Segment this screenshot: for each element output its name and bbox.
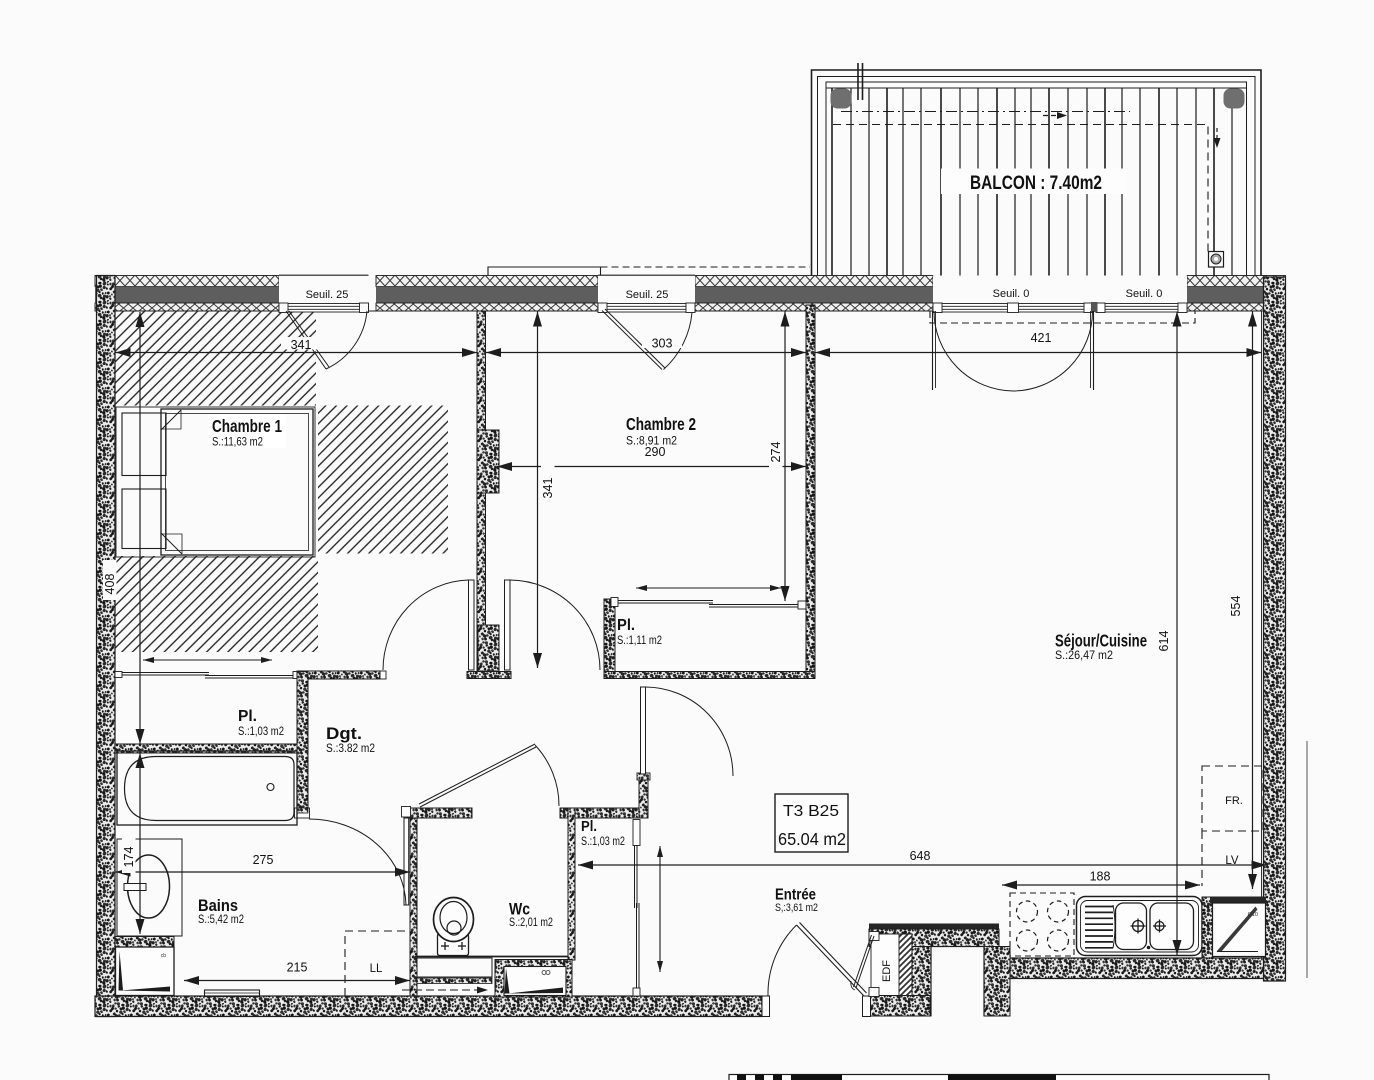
svg-text:Chambre 2: Chambre 2 bbox=[626, 414, 696, 434]
svg-text:275: 275 bbox=[253, 853, 274, 867]
svg-text:Entrée: Entrée bbox=[775, 887, 816, 904]
svg-text:188: 188 bbox=[1090, 870, 1111, 884]
svg-text:174: 174 bbox=[122, 847, 136, 868]
svg-text:341: 341 bbox=[291, 338, 312, 352]
svg-text:Bains: Bains bbox=[198, 896, 238, 915]
svg-text:Seuil. 0: Seuil. 0 bbox=[993, 288, 1030, 300]
svg-text:FR.: FR. bbox=[1225, 795, 1243, 807]
svg-text:215: 215 bbox=[287, 961, 308, 975]
svg-text:Pl.: Pl. bbox=[238, 708, 257, 725]
svg-text:Seuil. 25: Seuil. 25 bbox=[626, 289, 669, 301]
svg-text:Wc: Wc bbox=[509, 901, 530, 919]
svg-text:BALCON : 7.40m2: BALCON : 7.40m2 bbox=[970, 173, 1102, 194]
svg-text:Seuil. 0: Seuil. 0 bbox=[1126, 288, 1163, 300]
svg-text:S.:1,03 m2: S.:1,03 m2 bbox=[238, 726, 284, 738]
svg-text:EDF: EDF bbox=[881, 960, 893, 982]
svg-text:G10: G10 bbox=[1248, 912, 1258, 918]
svg-text:S.:1,11 m2: S.:1,11 m2 bbox=[617, 635, 662, 647]
svg-text:S.:3.82 m2: S.:3.82 m2 bbox=[326, 743, 375, 755]
svg-text:S.:2,01 m2: S.:2,01 m2 bbox=[509, 917, 553, 929]
svg-text:408: 408 bbox=[103, 574, 117, 595]
svg-text:S.:11,63 m2: S.:11,63 m2 bbox=[212, 437, 263, 449]
svg-text:614: 614 bbox=[1157, 631, 1171, 652]
svg-text:T3 B25: T3 B25 bbox=[783, 803, 839, 820]
svg-text:Seuil. 25: Seuil. 25 bbox=[306, 289, 349, 301]
svg-text:cb: cb bbox=[161, 953, 167, 959]
svg-text:S.:1,03 m2: S.:1,03 m2 bbox=[581, 836, 625, 848]
svg-text:341: 341 bbox=[541, 478, 555, 499]
svg-text:S.:8,91 m2: S.:8,91 m2 bbox=[626, 436, 677, 448]
svg-text:Dgt.: Dgt. bbox=[326, 725, 362, 743]
svg-text:421: 421 bbox=[1031, 331, 1052, 345]
svg-text:65.04 m2: 65.04 m2 bbox=[778, 829, 846, 849]
svg-text:S.:26,47 m2: S.:26,47 m2 bbox=[1055, 650, 1113, 662]
svg-text:LL: LL bbox=[370, 963, 383, 975]
svg-text:274: 274 bbox=[769, 442, 783, 463]
svg-text:Pl.: Pl. bbox=[617, 617, 635, 634]
svg-text:Chambre 1: Chambre 1 bbox=[212, 416, 282, 436]
svg-text:303: 303 bbox=[652, 337, 673, 351]
svg-text:Pl.: Pl. bbox=[581, 818, 597, 835]
svg-text:554: 554 bbox=[1229, 596, 1243, 617]
svg-text:648: 648 bbox=[910, 849, 931, 863]
svg-text:Séjour/Cuisine: Séjour/Cuisine bbox=[1055, 631, 1147, 651]
svg-text:S.:5,42 m2: S.:5,42 m2 bbox=[198, 914, 244, 926]
svg-text:S,:3,61 m2: S,:3,61 m2 bbox=[775, 902, 818, 914]
